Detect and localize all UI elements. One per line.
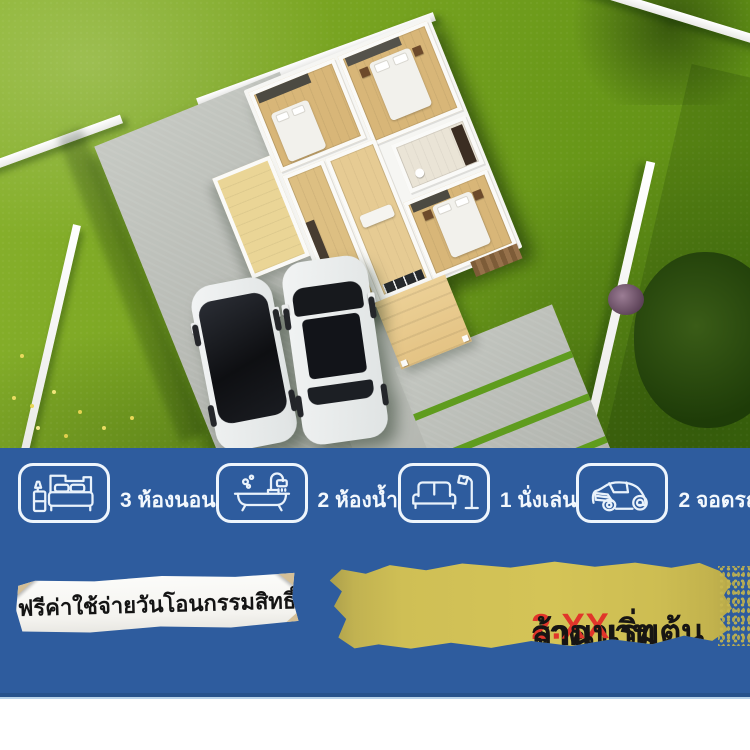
pillow xyxy=(291,104,306,116)
feature-bathrooms: 2 ห้องน้ำ xyxy=(216,463,398,523)
feature-band: 3 ห้องนอน 2 ห้องน้ำ xyxy=(0,448,750,697)
nightstand xyxy=(412,45,424,57)
real-estate-ad: 3 ห้องนอน 2 ห้องน้ำ xyxy=(0,0,750,750)
pillow xyxy=(392,52,409,66)
promo-note-text: ฟรีค่าใช้จ่ายวันโอนกรรมสิทธิ์ xyxy=(17,583,296,626)
aerial-render xyxy=(0,0,750,448)
nightstand xyxy=(422,209,434,221)
car-icon xyxy=(576,463,668,523)
car-roof-glass xyxy=(302,312,368,379)
feature-label: 2 จอดรถ xyxy=(678,488,750,513)
feature-bedrooms: 3 ห้องนอน xyxy=(18,463,216,523)
feature-label: 1 นั่งเล่น xyxy=(500,488,577,513)
feature-label: 3 ห้องนอน xyxy=(120,488,216,513)
pillow xyxy=(373,59,390,73)
features-row: 3 ห้องนอน 2 ห้องน้ำ xyxy=(0,462,750,524)
bed xyxy=(369,47,433,121)
purple-shrub xyxy=(608,284,644,315)
bathtub-icon xyxy=(216,463,308,523)
sofa xyxy=(359,204,395,229)
nightstand xyxy=(359,66,371,78)
brush-dry-streaks xyxy=(718,566,750,646)
feature-living: 1 นั่งเล่น xyxy=(398,463,577,523)
promo-note: ฟรีค่าใช้จ่ายวันโอนกรรมสิทธิ์ xyxy=(15,571,299,637)
pillow xyxy=(275,111,290,123)
toilet xyxy=(414,167,426,179)
bed xyxy=(270,99,327,162)
flower-speckles xyxy=(12,396,16,400)
feature-parking: 2 จอดรถ xyxy=(576,463,750,523)
pillow xyxy=(436,203,452,216)
price-banner: ราคาเริ่มต้น 2.XX ล้านบาท xyxy=(330,558,733,654)
sofa-icon xyxy=(398,463,490,523)
porch-column xyxy=(400,359,408,367)
footer-whitespace xyxy=(0,697,750,750)
pillow xyxy=(454,195,470,208)
bed-icon xyxy=(18,463,110,523)
porch-column xyxy=(462,335,470,343)
feature-label: 2 ห้องน้ำ xyxy=(318,488,398,513)
price-suffix: ล้านบาท xyxy=(531,605,655,660)
